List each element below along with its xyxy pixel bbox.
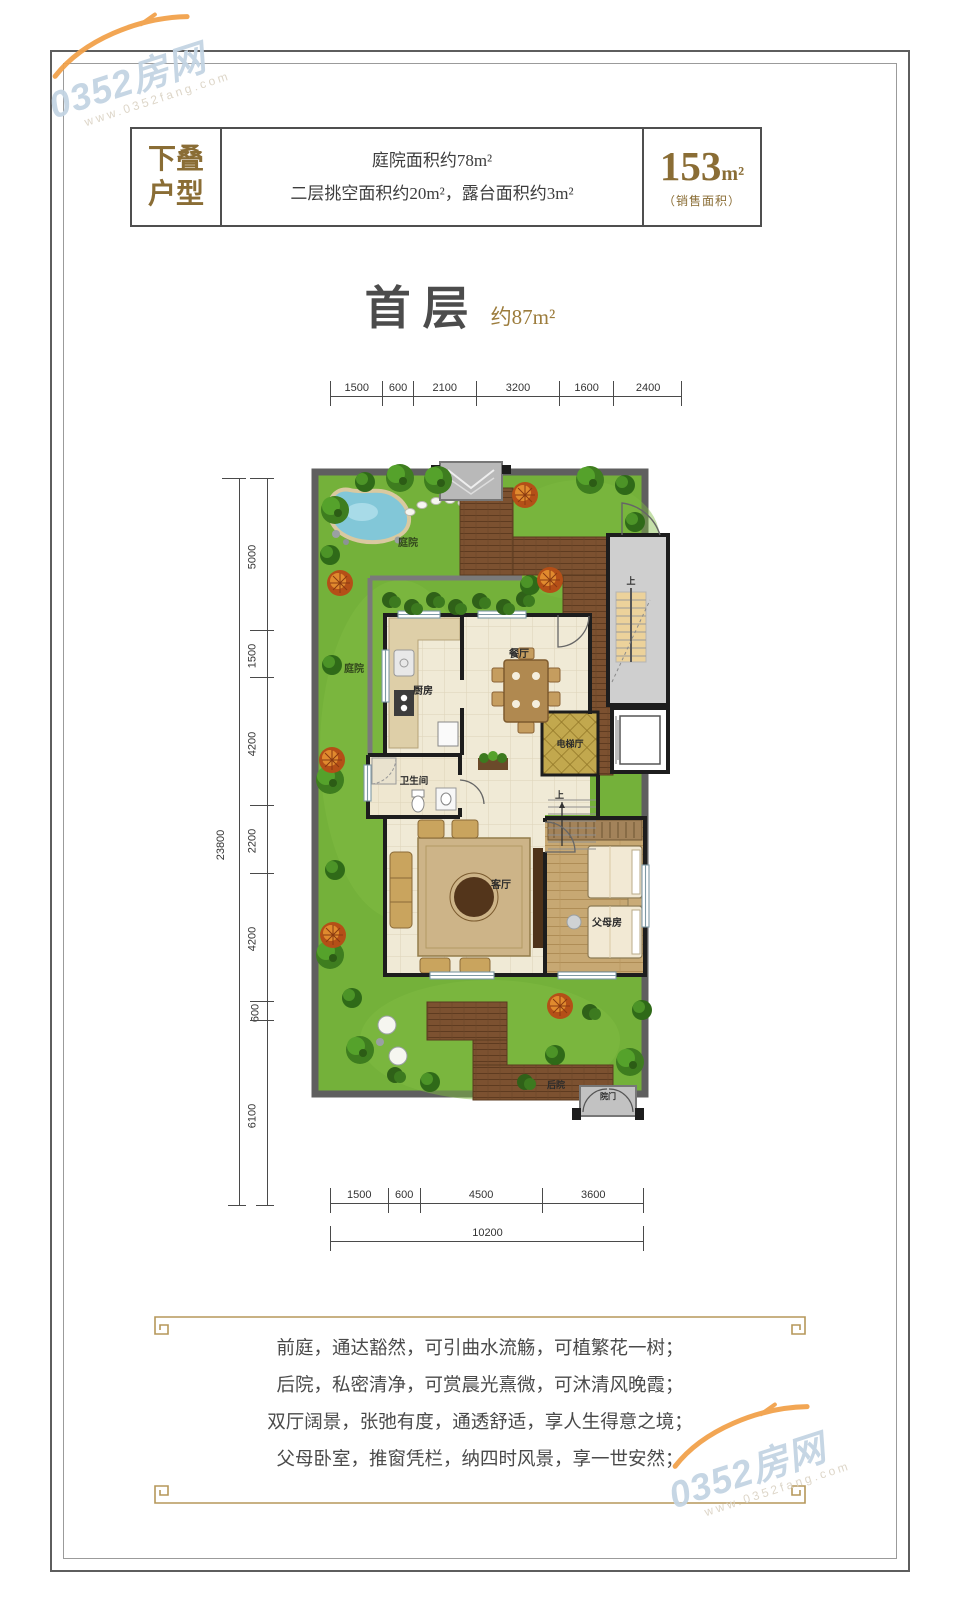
poem-line: 后院，私密清净，可赏晨光熹微，可沐清风晚霞； (140, 1368, 820, 1405)
dim-value: 6100 (247, 1103, 258, 1127)
floor-title: 首层 约87m² (150, 272, 770, 338)
dim-value: 1500 (347, 1190, 371, 1208)
courtyard-top-label: 庭院 (398, 536, 418, 549)
dim-segment: 2400 (613, 381, 682, 401)
dim-value: 5000 (247, 544, 258, 568)
dim-segment: 600 (382, 381, 412, 401)
dim-segment: 1600 (559, 381, 613, 401)
dim-segment: 6100 (250, 1020, 274, 1206)
dim-value: 3200 (506, 383, 530, 401)
dim-segment: 3200 (476, 381, 559, 401)
marketing-poem: 前庭，通达豁然，可引曲水流觞，可植繁花一树； 后院，私密清净，可赏晨光熹微，可沐… (140, 1331, 820, 1479)
dim-value: 1500 (345, 383, 369, 401)
header-info: 庭院面积约78m² 二层挑空面积约20m²，露台面积约3m² (222, 129, 642, 225)
stair-shaft: 上 (608, 503, 668, 705)
dimension-row-bottom: 150060045003600 (330, 1188, 644, 1208)
poem-line: 父母卧室，推窗凭栏，纳四时风景，享一世安然； (140, 1442, 820, 1479)
elevator-hall-label: 电梯厅 (556, 738, 583, 749)
dim-segment: 2200 (250, 805, 274, 873)
stair-up-label: 上 (555, 789, 564, 800)
dim-value: 4200 (247, 927, 258, 951)
unit-type-line2: 户型 (148, 177, 204, 212)
floorplan-drawing: 上 (290, 450, 670, 1130)
dim-segment: 23800 (222, 478, 246, 1206)
dim-value: 2100 (433, 383, 457, 401)
elevator-shaft (612, 708, 668, 772)
dim-value: 3600 (581, 1190, 605, 1208)
dim-value: 4200 (247, 731, 258, 755)
dimension-col-left: 500015004200220042006006100 (250, 478, 274, 1206)
planter (478, 751, 508, 770)
dim-segment: 1500 (330, 381, 382, 401)
dimension-row-bottom-total: 10200 (330, 1226, 644, 1246)
dining-label: 餐厅 (508, 647, 529, 660)
dim-segment: 1500 (330, 1188, 388, 1208)
header-box: 下叠 户型 庭院面积约78m² 二层挑空面积约20m²，露台面积约3m² 153… (130, 127, 762, 227)
dim-segment: 5000 (250, 478, 274, 630)
poem-line: 前庭，通达豁然，可引曲水流觞，可植繁花一树； (140, 1331, 820, 1368)
dim-value: 600 (395, 1190, 413, 1208)
dim-value: 1500 (247, 644, 258, 668)
dim-segment: 1500 (250, 630, 274, 676)
floorplan-page: 0352房网 www.0352fang.com 下叠 户型 庭院面积约78m² … (0, 0, 960, 1620)
dim-segment: 4500 (420, 1188, 542, 1208)
floor-area: 约87m² (491, 305, 556, 329)
sale-area-note: （销售面积） (663, 192, 741, 209)
poem-line: 双厅阔景，张弛有度，通透舒适，享人生得意之境； (140, 1405, 820, 1442)
void-terrace-area-text: 二层挑空面积约20m²，露台面积约3m² (290, 177, 573, 210)
sale-area-box: 153m² （销售面积） (642, 129, 760, 225)
dim-value: 600 (389, 383, 407, 401)
stair-up-label: 上 (626, 575, 635, 586)
gate-label: 院门 (600, 1091, 616, 1101)
dim-segment: 10200 (330, 1226, 644, 1246)
dimension-col-left-total: 23800 (222, 478, 246, 1206)
kitchen-label: 厨房 (413, 684, 433, 697)
backyard-label: 后院 (547, 1079, 565, 1090)
dim-segment: 600 (250, 1001, 274, 1020)
unit-type-line1: 下叠 (148, 142, 204, 177)
dim-value: 2200 (247, 829, 258, 853)
dim-value: 4500 (469, 1190, 493, 1208)
parents-room-label: 父母房 (591, 916, 622, 929)
dim-value: 2400 (636, 383, 660, 401)
courtyard-left-label: 庭院 (344, 662, 364, 675)
bathroom-label: 卫生间 (400, 775, 429, 787)
dim-value: 1600 (574, 383, 598, 401)
dim-segment: 2100 (413, 381, 476, 401)
dim-value: 23800 (216, 829, 227, 860)
dim-value: 10200 (472, 1228, 503, 1246)
dim-segment: 3600 (542, 1188, 644, 1208)
floor-name: 首层 (365, 283, 481, 334)
unit-type-tag: 下叠 户型 (132, 129, 222, 225)
dim-segment: 4200 (250, 677, 274, 805)
dimension-row-top: 15006002100320016002400 (330, 381, 682, 401)
dim-segment: 4200 (250, 873, 274, 1001)
courtyard-area-text: 庭院面积约78m² (372, 144, 492, 177)
dim-segment: 600 (388, 1188, 420, 1208)
living-label: 客厅 (490, 878, 511, 891)
sale-area-value: 153m² (660, 146, 744, 187)
